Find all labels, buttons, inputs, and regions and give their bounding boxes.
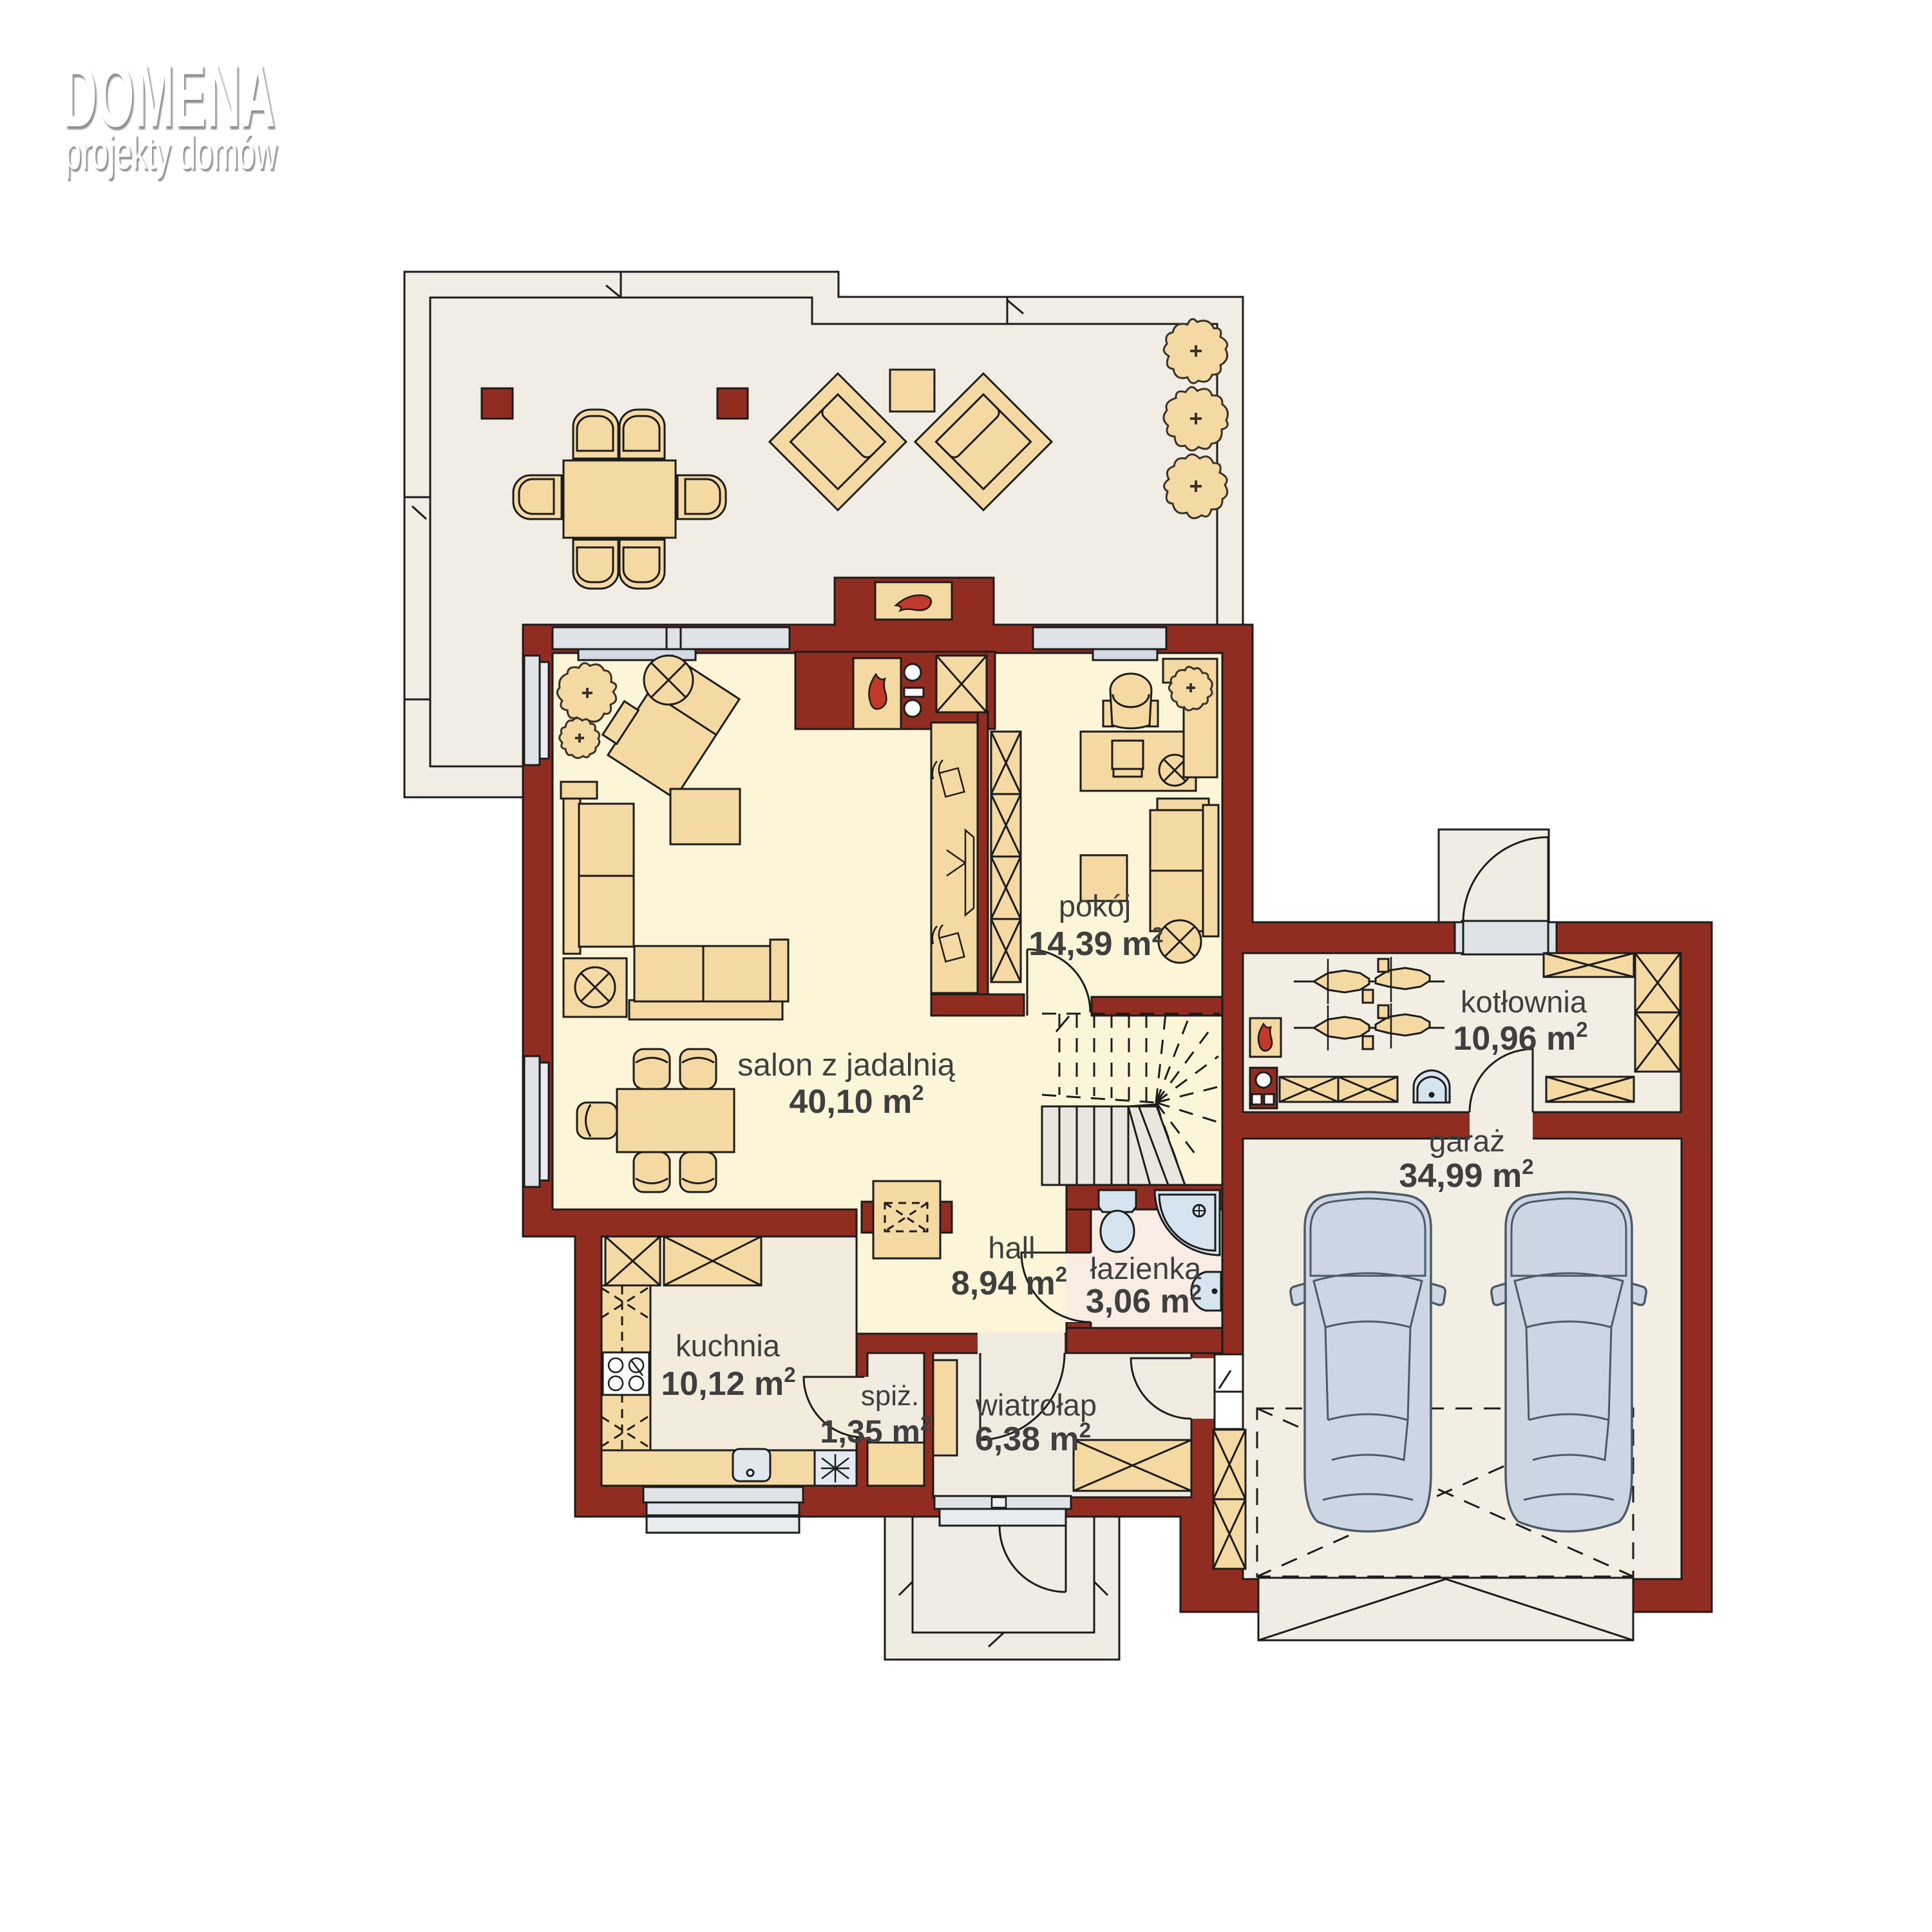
svg-text:salon z jadalnią: salon z jadalnią xyxy=(737,1048,956,1083)
svg-text:3,06 m2: 3,06 m2 xyxy=(1086,1280,1202,1320)
svg-text:10,96 m2: 10,96 m2 xyxy=(1453,1018,1587,1057)
svg-text:14,39 m2: 14,39 m2 xyxy=(1028,923,1163,963)
svg-text:projekty domów: projekty domów xyxy=(64,126,277,179)
svg-text:34,99 m2: 34,99 m2 xyxy=(1399,1155,1533,1195)
svg-text:kuchnia: kuchnia xyxy=(676,1329,781,1363)
svg-text:łazienka: łazienka xyxy=(1090,1251,1202,1285)
svg-text:spiż.: spiż. xyxy=(861,1380,919,1412)
svg-text:40,10 m2: 40,10 m2 xyxy=(789,1081,923,1121)
svg-text:garaż: garaż xyxy=(1429,1124,1505,1158)
svg-text:wiatrołap: wiatrołap xyxy=(975,1388,1097,1422)
svg-text:kotłownia: kotłownia xyxy=(1461,985,1587,1019)
svg-text:pokój: pokój xyxy=(1059,889,1131,923)
svg-text:6,38 m2: 6,38 m2 xyxy=(975,1418,1091,1458)
svg-text:10,12 m2: 10,12 m2 xyxy=(661,1363,795,1403)
svg-text:hall: hall xyxy=(988,1231,1035,1265)
svg-text:1,35 m2: 1,35 m2 xyxy=(820,1412,931,1450)
svg-text:8,94 m2: 8,94 m2 xyxy=(951,1262,1067,1302)
